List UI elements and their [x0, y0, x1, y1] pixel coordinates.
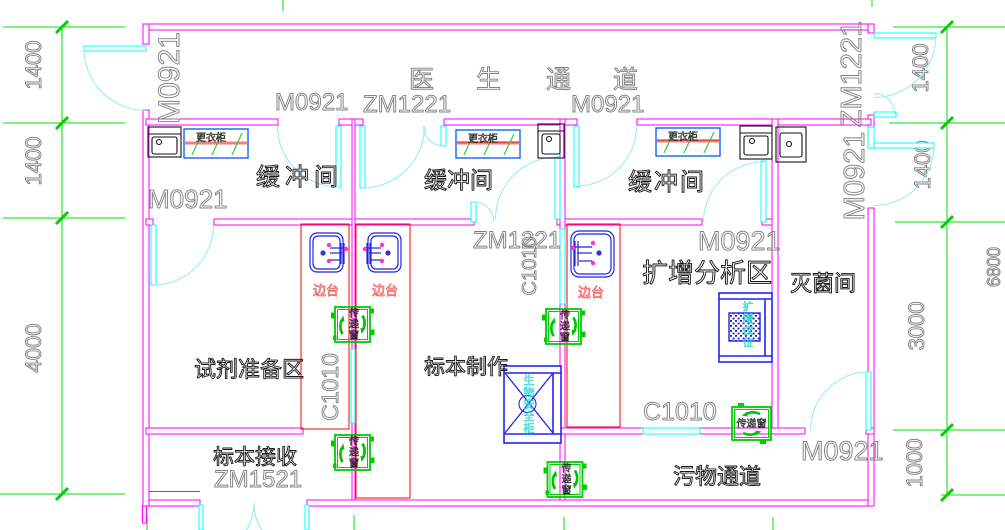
svg-text:道: 道 — [613, 66, 638, 94]
svg-text:标本制作: 标本制作 — [424, 356, 508, 379]
svg-text:生物安全柜: 生物安全柜 — [524, 373, 535, 435]
svg-text:C1010: C1010 — [643, 398, 717, 426]
svg-text:缓冲间: 缓冲间 — [424, 167, 493, 193]
svg-text:ZM1521: ZM1521 — [214, 466, 302, 493]
svg-text:1000: 1000 — [902, 439, 927, 488]
svg-text:试剂准备区: 试剂准备区 — [194, 357, 304, 382]
svg-text:边台: 边台 — [578, 285, 604, 300]
svg-text:边台: 边台 — [372, 283, 398, 298]
svg-text:更衣柜: 更衣柜 — [668, 130, 698, 143]
svg-text:ZM1221: ZM1221 — [363, 91, 451, 118]
svg-text:缓冲间: 缓冲间 — [628, 169, 706, 196]
svg-text:M0921: M0921 — [148, 184, 228, 214]
svg-text:ZM1221: ZM1221 — [473, 227, 561, 254]
svg-text:扩增仪位: 扩增仪位 — [743, 300, 754, 349]
svg-text:ZM1221: ZM1221 — [836, 21, 868, 127]
svg-text:C1010: C1010 — [317, 353, 343, 421]
svg-text:污物通道: 污物通道 — [673, 464, 761, 489]
svg-text:M0921: M0921 — [153, 32, 186, 124]
svg-text:M0921: M0921 — [698, 226, 781, 256]
svg-text:更衣柜: 更衣柜 — [468, 132, 498, 145]
svg-text:M0921: M0921 — [275, 89, 348, 116]
svg-text:标本接收: 标本接收 — [213, 446, 297, 469]
svg-text:1400: 1400 — [21, 41, 46, 90]
svg-text:C1010: C1010 — [519, 237, 541, 296]
svg-text:4000: 4000 — [21, 324, 46, 373]
svg-text:扩增分析区: 扩增分析区 — [642, 258, 772, 288]
svg-text:M0921: M0921 — [839, 132, 871, 221]
svg-text:传递窗: 传递窗 — [737, 417, 767, 430]
svg-text:医: 医 — [409, 66, 434, 94]
svg-text:3000: 3000 — [904, 302, 929, 351]
svg-text:M0921: M0921 — [801, 436, 884, 466]
svg-text:缓冲间: 缓冲间 — [256, 164, 343, 191]
svg-text:灭菌间: 灭菌间 — [790, 271, 856, 296]
svg-text:6800: 6800 — [984, 247, 1004, 287]
svg-text:传递窗: 传递窗 — [349, 308, 359, 342]
svg-text:生: 生 — [476, 66, 501, 94]
svg-text:更衣柜: 更衣柜 — [196, 131, 226, 144]
svg-text:1400: 1400 — [21, 137, 46, 186]
svg-text:通: 通 — [546, 66, 571, 94]
svg-text:边台: 边台 — [313, 283, 339, 298]
svg-text:M0921: M0921 — [571, 91, 644, 118]
